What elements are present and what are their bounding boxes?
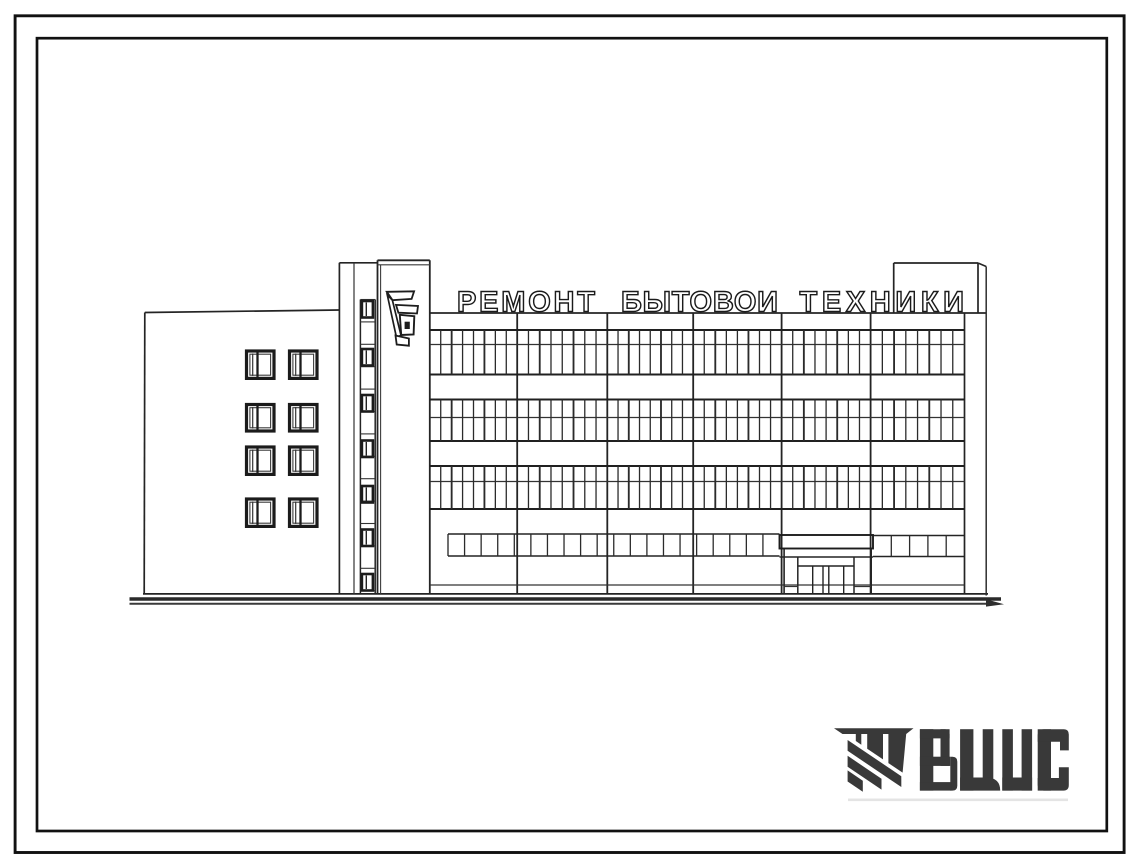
svg-text:БЫТОВОИ: БЫТОВОИ bbox=[621, 287, 778, 319]
